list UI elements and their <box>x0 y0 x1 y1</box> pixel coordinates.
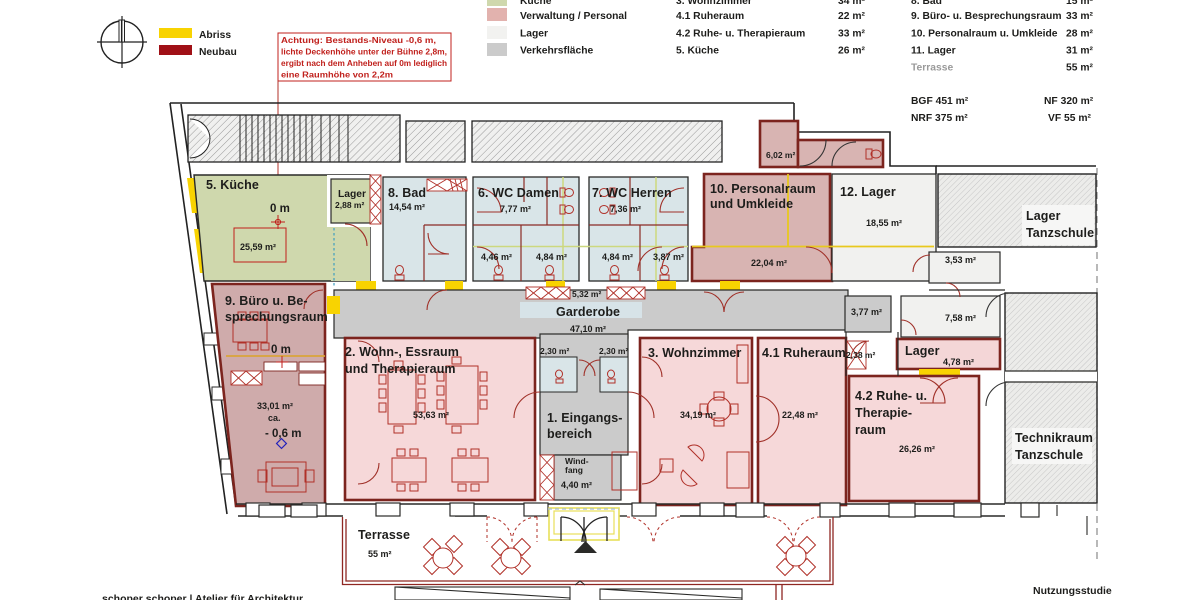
svg-text:34 m²: 34 m² <box>838 0 865 7</box>
svg-text:28 m²: 28 m² <box>1066 29 1093 40</box>
svg-text:8. Bad: 8. Bad <box>911 0 942 7</box>
svg-text:2. Wohn-, Essraum: 2. Wohn-, Essraum <box>345 345 459 359</box>
svg-text:Verkehrsfläche: Verkehrsfläche <box>520 46 594 57</box>
svg-text:4.1 Ruheraum: 4.1 Ruheraum <box>762 346 846 360</box>
svg-text:Verwaltung / Personal: Verwaltung / Personal <box>520 11 627 22</box>
svg-text:0 m: 0 m <box>270 203 290 215</box>
svg-text:- 0,6 m: - 0,6 m <box>265 428 301 440</box>
svg-text:Tanzschule: Tanzschule <box>1015 448 1083 462</box>
svg-text:Lager: Lager <box>905 344 940 358</box>
svg-text:7,36 m²: 7,36 m² <box>610 204 641 214</box>
svg-text:3,87 m²: 3,87 m² <box>653 252 684 262</box>
svg-text:fang: fang <box>565 465 583 475</box>
svg-text:26,26 m²: 26,26 m² <box>899 444 935 454</box>
svg-text:5,32 m²: 5,32 m² <box>572 289 601 299</box>
svg-text:3. Wohnzimmer: 3. Wohnzimmer <box>648 346 741 360</box>
svg-text:Lager: Lager <box>1026 209 1061 223</box>
svg-text:Lager: Lager <box>520 29 548 40</box>
svg-text:ergibt nach dem Anheben auf 0m: ergibt nach dem Anheben auf 0m lediglich <box>281 58 447 68</box>
svg-text:33,01 m²: 33,01 m² <box>257 401 293 411</box>
svg-text:Therapie-: Therapie- <box>855 406 912 420</box>
svg-text:25,59 m²: 25,59 m² <box>240 242 276 252</box>
svg-text:22 m²: 22 m² <box>838 11 865 22</box>
svg-text:4,84 m²: 4,84 m² <box>536 252 567 262</box>
svg-text:31 m²: 31 m² <box>1066 46 1093 57</box>
svg-text:Tanzschule: Tanzschule <box>1026 226 1094 240</box>
svg-text:33 m²: 33 m² <box>838 29 865 40</box>
svg-text:55 m²: 55 m² <box>1066 63 1093 74</box>
svg-text:4.1 Ruheraum: 4.1 Ruheraum <box>676 11 744 22</box>
svg-text:Neubau: Neubau <box>199 47 237 58</box>
svg-text:9. Büro u. Be-: 9. Büro u. Be- <box>225 294 308 308</box>
svg-text:6. WC Damen: 6. WC Damen <box>478 186 559 200</box>
svg-text:55 m²: 55 m² <box>368 549 392 559</box>
svg-text:26 m²: 26 m² <box>838 46 865 57</box>
svg-text:10. Personalraum: 10. Personalraum <box>710 182 816 196</box>
svg-text:2,30 m²: 2,30 m² <box>599 346 628 356</box>
svg-text:7,58 m²: 7,58 m² <box>945 313 976 323</box>
svg-text:14,54 m²: 14,54 m² <box>389 202 425 212</box>
svg-text:und Umkleide: und Umkleide <box>710 197 793 211</box>
svg-text:raum: raum <box>855 423 886 437</box>
svg-text:und Therapieraum: und Therapieraum <box>345 362 456 376</box>
svg-text:47,10 m²: 47,10 m² <box>570 324 606 334</box>
svg-text:Terrasse: Terrasse <box>911 63 953 74</box>
svg-text:2,88 m²: 2,88 m² <box>335 200 364 210</box>
svg-text:4,84 m²: 4,84 m² <box>602 252 633 262</box>
svg-text:4.2 Ruhe- u.: 4.2 Ruhe- u. <box>855 389 927 403</box>
svg-text:0 m: 0 m <box>271 344 291 356</box>
svg-text:Küche: Küche <box>520 0 552 7</box>
svg-text:18,55 m²: 18,55 m² <box>866 218 902 228</box>
svg-text:12. Lager: 12. Lager <box>840 185 896 199</box>
svg-text:4,78 m²: 4,78 m² <box>943 357 974 367</box>
svg-text:lichte Deckenhöhe unter der Bü: lichte Deckenhöhe unter der Bühne 2,8m, <box>281 47 447 57</box>
svg-text:eine Raumhöhe von 2,2m: eine Raumhöhe von 2,2m <box>281 70 393 80</box>
svg-text:2,38 m²: 2,38 m² <box>846 350 875 360</box>
svg-text:Terrasse: Terrasse <box>358 528 410 542</box>
svg-text:Technikraum: Technikraum <box>1015 431 1093 445</box>
svg-text:7. WC Herren: 7. WC Herren <box>592 186 672 200</box>
svg-text:4,40 m²: 4,40 m² <box>561 480 592 490</box>
svg-text:BGF 451 m²: BGF 451 m² <box>911 96 969 107</box>
svg-text:Lager: Lager <box>338 189 366 200</box>
svg-text:bereich: bereich <box>547 427 592 441</box>
svg-text:ca.: ca. <box>268 413 281 423</box>
svg-text:8. Bad: 8. Bad <box>388 186 426 200</box>
svg-text:34,19 m²: 34,19 m² <box>680 410 716 420</box>
svg-text:15 m²: 15 m² <box>1066 0 1093 7</box>
svg-text:3. Wohnzimmer: 3. Wohnzimmer <box>676 0 752 7</box>
svg-text:1. Eingangs-: 1. Eingangs- <box>547 411 623 425</box>
svg-text:3,77 m²: 3,77 m² <box>851 307 882 317</box>
svg-text:NRF 375 m²: NRF 375 m² <box>911 113 968 124</box>
svg-text:33 m²: 33 m² <box>1066 11 1093 22</box>
svg-text:9. Büro- u. Besprechungsraum: 9. Büro- u. Besprechungsraum <box>911 11 1061 22</box>
svg-text:2,30 m²: 2,30 m² <box>540 346 569 356</box>
svg-text:5. Küche: 5. Küche <box>676 46 719 57</box>
svg-text:NF 320 m²: NF 320 m² <box>1044 96 1094 107</box>
svg-text:Nutzungsstudie: Nutzungsstudie <box>1033 585 1112 597</box>
svg-text:Achtung: Bestands-Niveau -0,6: Achtung: Bestands-Niveau -0,6 m, <box>281 35 436 45</box>
svg-text:7,77 m²: 7,77 m² <box>500 204 531 214</box>
svg-text:VF 55 m²: VF 55 m² <box>1048 113 1091 124</box>
svg-text:5. Küche: 5. Küche <box>206 178 259 192</box>
svg-text:4,46 m²: 4,46 m² <box>481 252 512 262</box>
svg-text:schoper schoper | Atelier für: schoper schoper | Atelier für Architektu… <box>102 593 303 600</box>
svg-text:4.2 Ruhe- u. Therapieraum: 4.2 Ruhe- u. Therapieraum <box>676 29 805 40</box>
svg-text:6,02 m²: 6,02 m² <box>766 150 795 160</box>
svg-text:10. Personalraum u. Umkleide: 10. Personalraum u. Umkleide <box>911 29 1058 40</box>
svg-text:11. Lager: 11. Lager <box>911 46 956 57</box>
svg-text:53,63 m²: 53,63 m² <box>413 410 449 420</box>
svg-text:22,04 m²: 22,04 m² <box>751 258 787 268</box>
svg-text:Garderobe: Garderobe <box>556 305 620 319</box>
svg-text:22,48 m²: 22,48 m² <box>782 410 818 420</box>
svg-text:sprechungsraum: sprechungsraum <box>225 310 328 324</box>
svg-text:Abriss: Abriss <box>199 30 231 41</box>
svg-text:3,53 m²: 3,53 m² <box>945 255 976 265</box>
